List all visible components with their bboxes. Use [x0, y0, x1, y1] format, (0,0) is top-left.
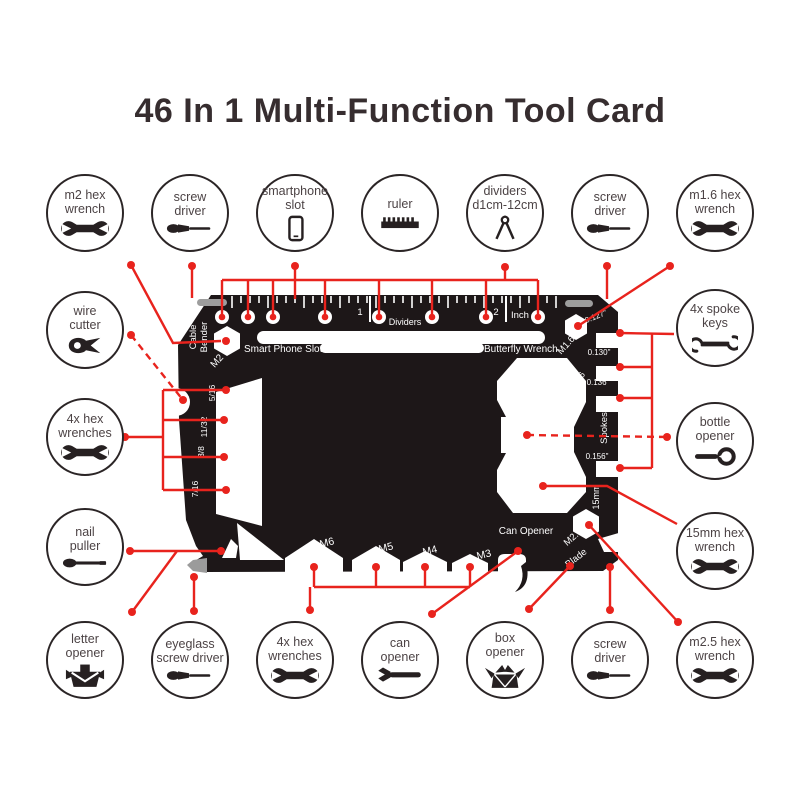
wrench-icon [691, 557, 739, 576]
callout-label: m1.6 hexwrench [689, 188, 740, 216]
callout-eyeglass-screw-driver: eyeglassscrew driver [151, 621, 229, 699]
callout-m1-6-hex-wrench: m1.6 hexwrench [676, 174, 754, 252]
butterfly-wrench-label: Butterfly Wrench [484, 344, 558, 355]
svg-text:2: 2 [493, 307, 498, 318]
callout-screw-driver-top-left: screwdriver [151, 174, 229, 252]
callout-label: bottleopener [696, 415, 735, 443]
callout-4x-spoke-keys: 4x spokekeys [676, 289, 754, 367]
svg-text:0.130": 0.130" [588, 348, 611, 357]
svg-text:1: 1 [357, 307, 362, 318]
spokes-label: Spokes [599, 412, 610, 444]
callout-label: letteropener [66, 632, 105, 660]
screwdriver-icon [586, 221, 634, 236]
callout-dividers: dividersd1cm-12cm [466, 174, 544, 252]
nail-puller-icon [62, 556, 108, 570]
callout-wire-cutter: wirecutter [46, 291, 124, 369]
callout-bottle-opener: bottleopener [676, 402, 754, 480]
wrench-icon [271, 666, 319, 685]
callout-ruler: ruler [361, 174, 439, 252]
wrench-icon [691, 219, 739, 238]
can-opener-icon [377, 667, 423, 684]
callout-label: dividersd1cm-12cm [472, 184, 537, 212]
callout-label: boxopener [486, 631, 525, 659]
callout-label: screwdriver [174, 190, 207, 218]
dividers-icon [488, 215, 522, 242]
callout-screw-driver-bottom: screwdriver [571, 621, 649, 699]
svg-text:0.156": 0.156" [586, 452, 609, 461]
screwdriver-icon [166, 221, 214, 236]
callout-letter-opener: letteropener [46, 621, 124, 699]
envelope-icon [65, 663, 105, 688]
wrench-icon [61, 219, 109, 238]
ruler-icon [379, 214, 421, 229]
infographic-stage: 46 In 1 Multi-Function Tool Card [0, 0, 800, 800]
callout-4x-hex-wrenches-left: 4x hexwrenches [46, 398, 124, 476]
callout-label: eyeglassscrew driver [156, 637, 223, 665]
callout-label: m2.5 hexwrench [689, 635, 740, 663]
callout-label: screwdriver [594, 637, 627, 665]
callout-label: 4x hexwrenches [268, 635, 322, 663]
screwdriver-icon [586, 668, 634, 683]
callout-m2-5-hex-wrench: m2.5 hexwrench [676, 621, 754, 699]
bottle-opener-icon [693, 446, 737, 467]
svg-text:0.136": 0.136" [587, 378, 610, 387]
wrench-icon [61, 443, 109, 462]
cable-bender-label: Cable [188, 325, 199, 350]
callout-nail-puller: nailpuller [46, 508, 124, 586]
callout-m2-hex-wrench: m2 hexwrench [46, 174, 124, 252]
smart-phone-slot-label: Smart Phone Slot [244, 344, 323, 355]
callout-smartphone-slot: smartphoneslot [256, 174, 334, 252]
phone-icon [282, 215, 308, 242]
letter-opener-tip [187, 558, 207, 573]
wrench-icon [691, 666, 739, 685]
callout-15mm-hex-wrench: 15mm hexwrench [676, 512, 754, 590]
callout-label: ruler [387, 197, 412, 211]
dividers-label: Dividers [389, 317, 422, 327]
callout-label: smartphoneslot [262, 184, 328, 212]
callout-can-opener: canopener [361, 621, 439, 699]
callout-label: 15mm hexwrench [686, 526, 744, 554]
callout-label: m2 hexwrench [65, 188, 106, 216]
can-opener-label: Can Opener [499, 526, 554, 537]
callout-label: canopener [381, 636, 420, 664]
callout-label: nailpuller [70, 525, 101, 553]
box-opener-icon [484, 662, 526, 689]
screwdriver-icon [166, 668, 214, 683]
spoke-key-icon [692, 333, 738, 354]
callout-4x-hex-wrenches-bottom: 4x hexwrenches [256, 621, 334, 699]
svg-text:5/16: 5/16 [207, 384, 217, 401]
callout-label: screwdriver [594, 190, 627, 218]
callout-box-opener: boxopener [466, 621, 544, 699]
callout-label: wirecutter [69, 304, 100, 332]
pliers-icon [65, 335, 105, 356]
15mm-label: 15mm [591, 484, 601, 509]
inch-label: Inch [511, 310, 529, 321]
callout-label: 4x hexwrenches [58, 412, 112, 440]
svg-text:Bender: Bender [199, 322, 210, 353]
callout-screw-driver-top-right: screwdriver [571, 174, 649, 252]
callout-label: 4x spokekeys [690, 302, 740, 330]
